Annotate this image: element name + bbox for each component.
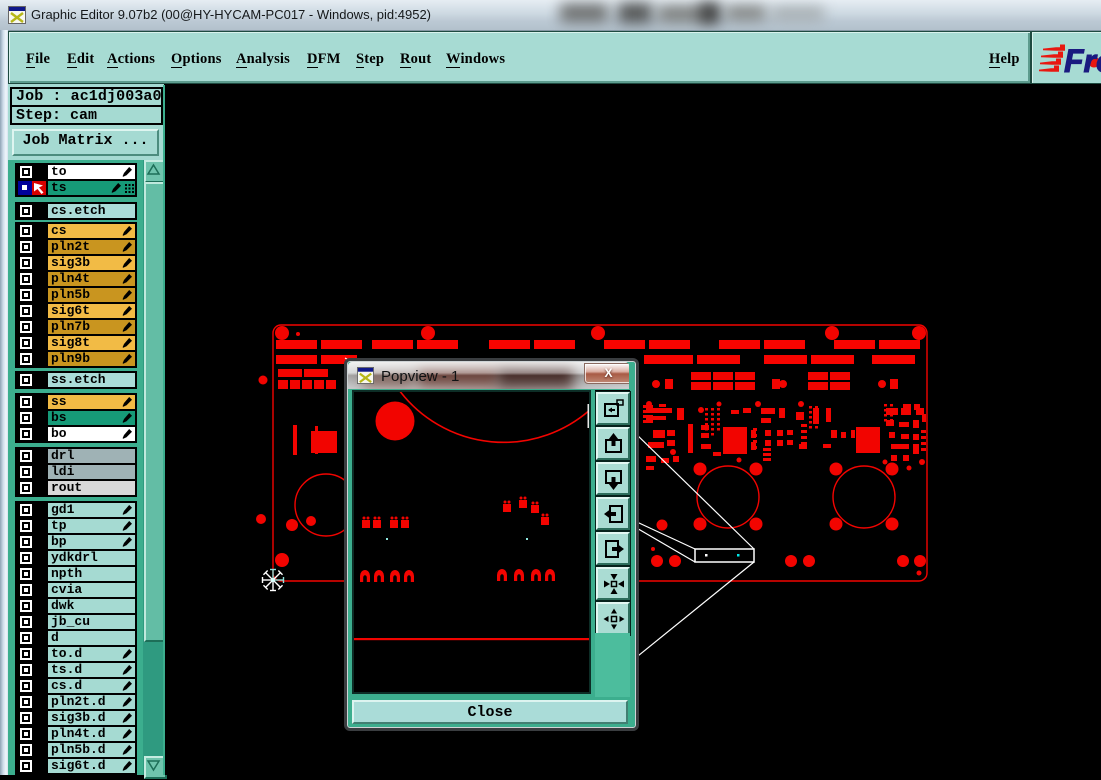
svg-text:Fro: Fro — [1064, 43, 1101, 79]
